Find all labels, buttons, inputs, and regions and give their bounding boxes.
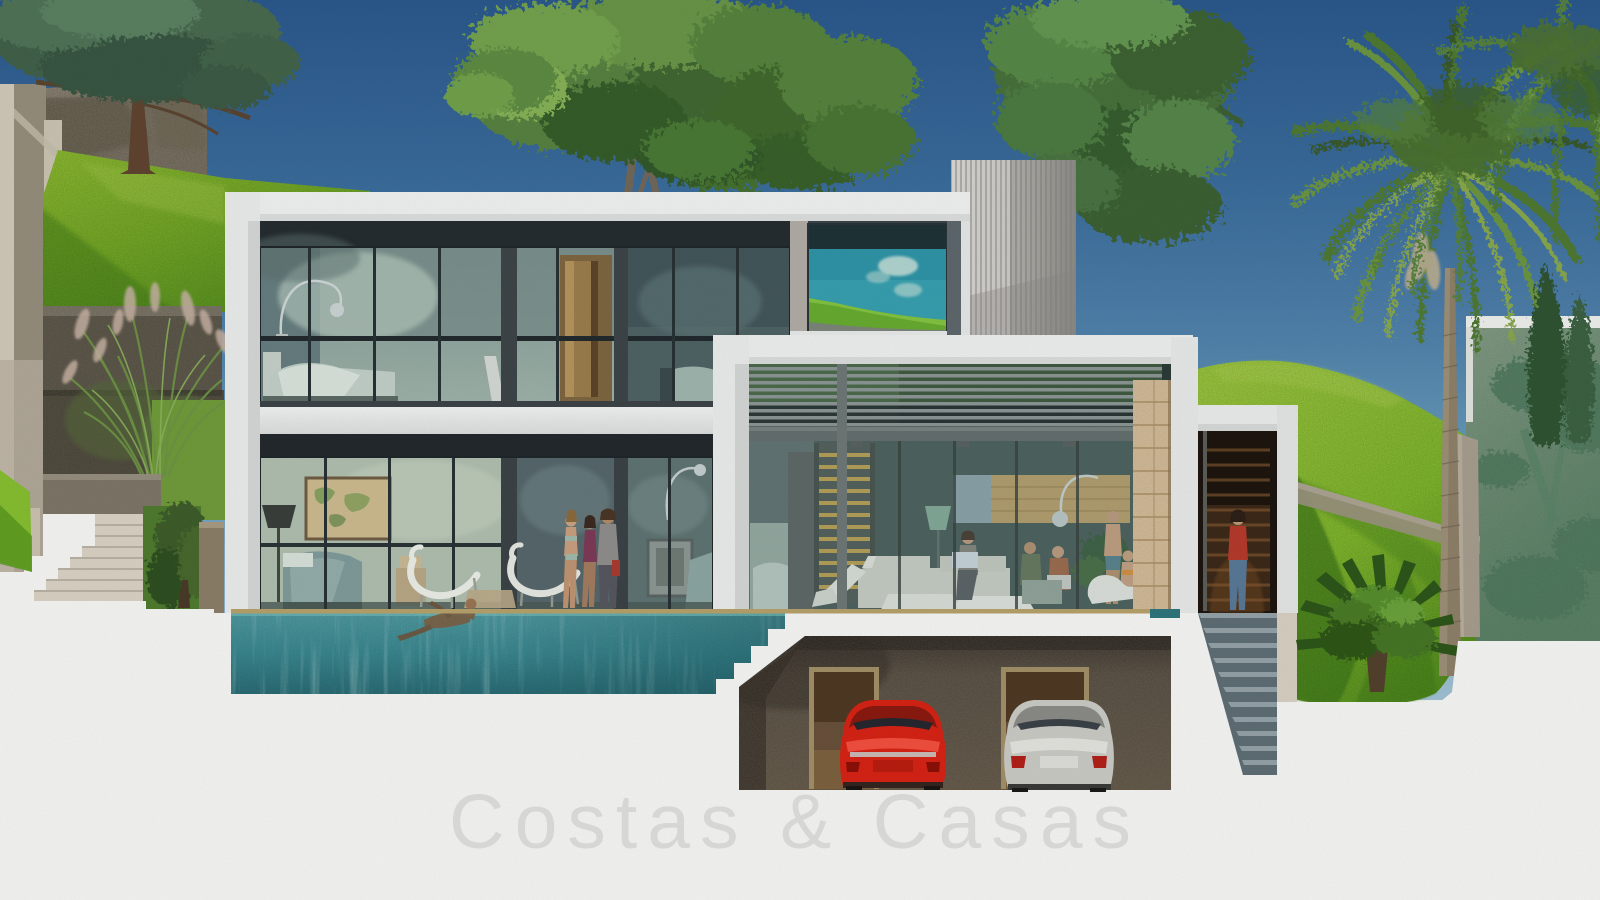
- svg-text:Costas & Casas: Costas & Casas: [449, 779, 1141, 865]
